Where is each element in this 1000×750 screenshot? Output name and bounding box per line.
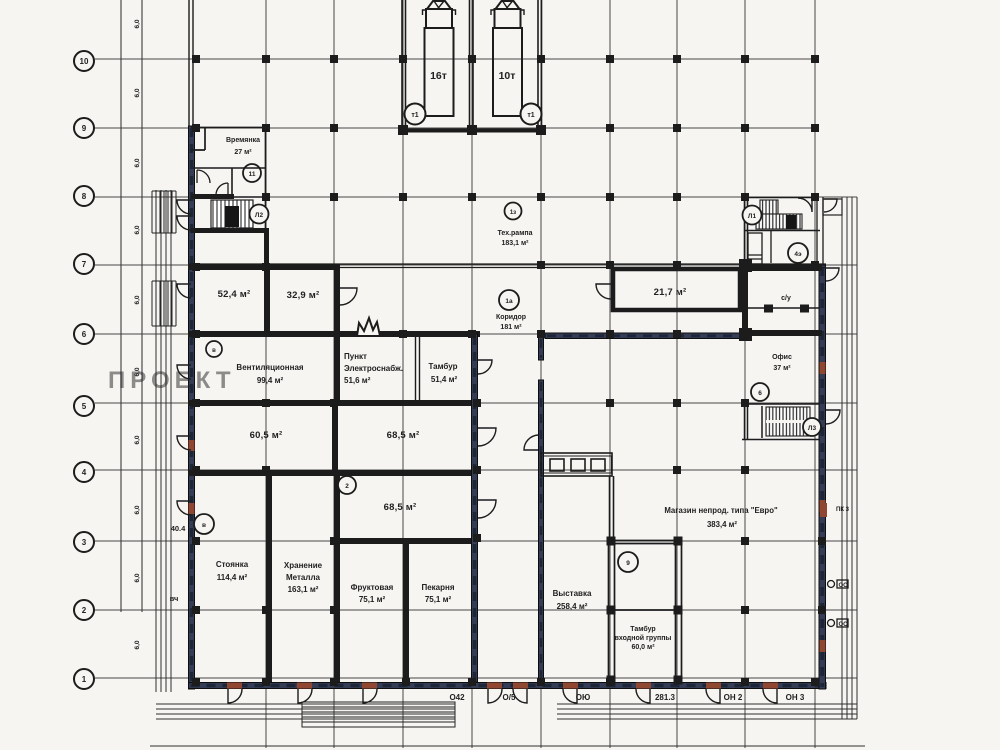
svg-text:60,0 м²: 60,0 м² [631,644,655,651]
svg-text:Электроснабж.: Электроснабж. [344,364,403,373]
svg-text:Хранение: Хранение [284,561,323,570]
svg-text:68,5 м²: 68,5 м² [384,502,417,513]
svg-text:281.3: 281.3 [655,693,676,702]
svg-text:183,1 м²: 183,1 м² [502,240,530,247]
svg-text:ОС: ОС [839,583,849,589]
svg-text:Магазин непрод. типа "Евро": Магазин непрод. типа "Евро" [664,506,778,515]
svg-text:383,4 м²: 383,4 м² [707,520,737,529]
svg-text:Стоянка: Стоянка [216,560,249,569]
svg-text:6,0: 6,0 [134,158,141,167]
svg-text:21,7 м²: 21,7 м² [654,287,687,298]
svg-text:3: 3 [82,538,87,547]
svg-text:32,9 м²: 32,9 м² [287,290,320,301]
svg-text:4: 4 [82,468,87,477]
svg-text:6,0: 6,0 [134,88,141,97]
svg-text:Вентиляционная: Вентиляционная [236,363,303,372]
svg-text:Фруктовая: Фруктовая [351,583,394,592]
svg-text:114,4 м²: 114,4 м² [217,573,248,582]
svg-text:9: 9 [82,124,87,133]
svg-text:входной группы: входной группы [615,634,672,642]
svg-text:Металла: Металла [286,573,321,582]
svg-text:2: 2 [82,606,87,615]
svg-text:27 м²: 27 м² [234,149,252,156]
svg-text:6,0: 6,0 [134,505,141,514]
svg-text:с/у: с/у [781,295,791,302]
svg-text:2: 2 [345,483,349,490]
svg-text:60,5 м²: 60,5 м² [250,430,283,441]
svg-text:1з: 1з [510,210,516,216]
svg-text:Пекарня: Пекарня [421,583,454,592]
svg-text:6,0: 6,0 [134,295,141,304]
svg-text:ОН 2: ОН 2 [724,693,743,702]
svg-text:7: 7 [82,260,87,269]
svg-text:О/5: О/5 [503,693,516,702]
svg-text:в: в [212,348,216,354]
svg-text:10: 10 [80,57,89,66]
svg-text:4э: 4э [794,251,802,258]
svg-text:ОН 3: ОН 3 [786,693,805,702]
svg-text:Пункт: Пункт [344,352,367,361]
svg-text:Тамбур: Тамбур [630,625,655,633]
svg-text:ПК 3: ПК 3 [836,507,850,513]
svg-text:51,6 м²: 51,6 м² [344,376,371,385]
svg-text:Л1: Л1 [748,213,757,220]
svg-text:1а: 1а [505,298,513,305]
svg-text:6,0: 6,0 [134,435,141,444]
svg-text:75,1 м²: 75,1 м² [359,595,386,604]
svg-text:т1: т1 [411,112,418,119]
svg-text:37 м²: 37 м² [773,365,791,372]
svg-text:в: в [202,522,206,529]
svg-text:Тех.рампа: Тех.рампа [497,230,532,237]
svg-text:9: 9 [626,560,630,567]
svg-text:40.4: 40.4 [171,524,186,533]
svg-text:ПРОЕКТ: ПРОЕКТ [108,367,236,394]
svg-text:11: 11 [249,171,256,178]
svg-text:6,0: 6,0 [134,19,141,28]
svg-text:Выставка: Выставка [553,589,592,598]
svg-text:вч: вч [170,594,179,603]
svg-text:6: 6 [758,390,762,397]
svg-text:Л2: Л2 [255,212,264,219]
svg-text:99,4 м²: 99,4 м² [257,376,284,385]
svg-text:10т: 10т [499,70,516,82]
svg-text:5: 5 [82,402,87,411]
svg-text:Л3: Л3 [808,425,817,432]
svg-text:163,1 м²: 163,1 м² [288,585,319,594]
svg-text:т1: т1 [527,112,534,119]
svg-text:75,1 м²: 75,1 м² [425,595,452,604]
svg-text:ОС: ОС [839,622,849,628]
svg-text:Коридор: Коридор [496,314,526,321]
svg-text:Тамбур: Тамбур [428,362,457,371]
svg-text:Времянка: Времянка [226,137,260,144]
svg-text:6,0: 6,0 [134,225,141,234]
svg-text:258,4 м²: 258,4 м² [557,602,588,611]
svg-text:6,0: 6,0 [134,573,141,582]
svg-text:Офис: Офис [772,354,792,361]
svg-text:181 м²: 181 м² [500,324,522,331]
svg-text:16т: 16т [430,70,447,82]
svg-text:52,4 м²: 52,4 м² [218,289,251,300]
svg-text:68,5 м²: 68,5 м² [387,430,420,441]
svg-text:1: 1 [82,675,87,684]
svg-text:6: 6 [82,330,87,339]
svg-text:ОЮ: ОЮ [576,693,590,702]
svg-text:6,0: 6,0 [134,640,141,649]
svg-text:51,4 м²: 51,4 м² [431,375,458,384]
svg-text:О42: О42 [449,693,465,702]
svg-text:8: 8 [82,192,87,201]
